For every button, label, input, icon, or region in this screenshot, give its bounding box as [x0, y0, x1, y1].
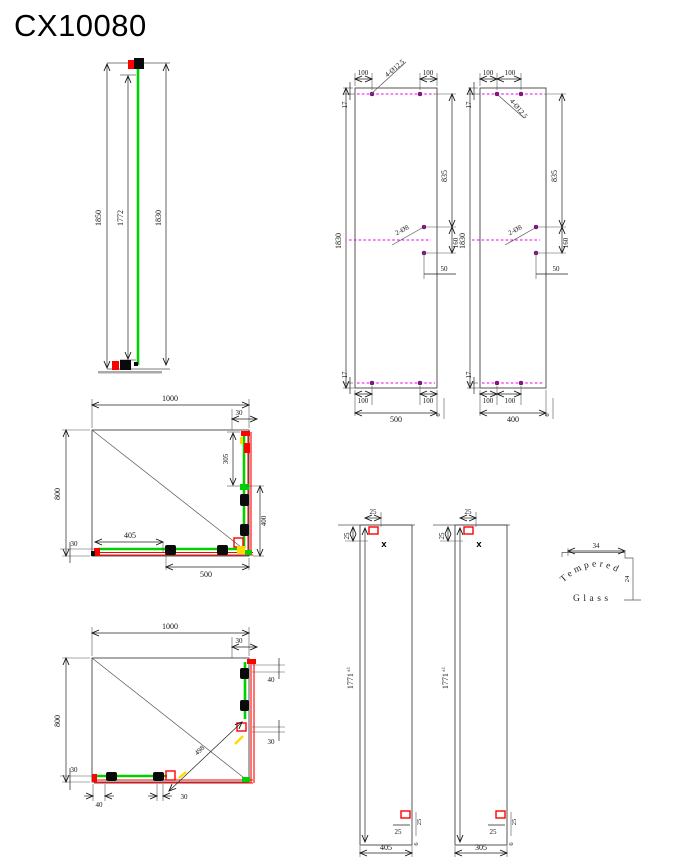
- side-elevation-view: 1850 1772 1830: [94, 58, 170, 374]
- dim-height: 1771±1: [441, 666, 450, 689]
- plan-view-bottom: 1000 30 40 30 800 30 40 30 498: [53, 622, 285, 809]
- panel-outline: [480, 88, 546, 388]
- dim-top-left: 100: [358, 69, 369, 77]
- hole: [495, 381, 499, 385]
- dim-bottom-a: 40: [96, 801, 104, 809]
- dim-bottom-right: 100: [505, 397, 516, 405]
- drawing-sheet: CX10080 1850 1772 1830: [0, 0, 680, 864]
- glass-outline: [360, 525, 412, 845]
- clamp: [106, 772, 117, 781]
- bottom-bracket-red: [112, 361, 119, 370]
- glass-outline: [455, 525, 507, 845]
- dim-overall-height: 1850: [94, 210, 103, 226]
- dim-width: 305: [475, 843, 487, 852]
- dim-width: 400: [507, 415, 519, 424]
- drilling-view-left: 100 100 4-Ø12.5 17 835 1830 2-Ø8 160 50: [334, 58, 460, 424]
- dim-corner: 30: [236, 637, 244, 645]
- hole: [519, 92, 523, 96]
- dim-top-edge: 17: [465, 101, 473, 109]
- dim-top-right: 100: [423, 69, 434, 77]
- plan-view-top: 1000 30 305 400 800 30 405 500: [53, 394, 268, 579]
- dim-width: 405: [380, 843, 392, 852]
- dim-edge-offset: 25: [511, 819, 518, 826]
- dim-bottom-right: 100: [423, 397, 434, 405]
- stamp-arc-text: Tempered: [559, 559, 623, 584]
- dim-height: 800: [53, 715, 62, 727]
- dim-side-offset: 25: [438, 532, 446, 540]
- clamp: [240, 524, 249, 536]
- dim-width: 1000: [162, 394, 178, 403]
- dim-top-right: 100: [505, 69, 516, 77]
- glass-clamp: [240, 484, 249, 490]
- dim-thickness: 6: [508, 842, 515, 846]
- note-top-holes: 4-Ø12.5: [508, 97, 529, 120]
- hole-bottom: [496, 811, 505, 818]
- dim-corner: 30: [236, 409, 244, 417]
- dim-top-offset: 25: [370, 508, 378, 516]
- dim-stamp-side: 24: [624, 575, 631, 582]
- note-mid-holes: 2-Ø8: [507, 223, 524, 237]
- top-bracket-red: [128, 60, 134, 69]
- clamp: [240, 668, 249, 679]
- dim-right-upper: 40: [268, 676, 276, 684]
- dim-bottom-b: 30: [181, 793, 189, 801]
- dim-width: 500: [390, 415, 402, 424]
- clamp: [217, 545, 228, 555]
- hole-mark: X: [476, 541, 482, 549]
- dim-mid-edge: 50: [553, 265, 561, 273]
- dim-mid-edge: 50: [441, 265, 449, 273]
- dim-height: 1771±1: [346, 666, 355, 689]
- dim-height: 1830: [334, 233, 343, 249]
- clamp: [165, 545, 176, 555]
- tempered-glass-stamp: 34 24 Tempered Glass: [559, 542, 641, 604]
- floor-line: [98, 371, 162, 374]
- hole: [370, 381, 374, 385]
- drilling-view-right: 100 100 4-Ø12.5 17 835 1830 2-Ø8 160 50 …: [458, 69, 570, 424]
- note-mid-holes: 2-Ø8: [394, 223, 411, 237]
- dim-upper-right: 305: [222, 453, 230, 464]
- clamp: [240, 700, 249, 711]
- hole-top: [369, 527, 378, 534]
- dim-mid-spacing: 160: [562, 237, 570, 248]
- stamp-base-text: Glass: [573, 594, 612, 604]
- dim-height: 1830: [458, 233, 467, 249]
- dim-upper-span: 835: [550, 170, 559, 182]
- glass-panel-right: X 25 25 1771±1 25 25 305 6: [433, 508, 518, 857]
- dim-height-value: 1771: [441, 673, 450, 689]
- dim-left: 30: [71, 540, 79, 548]
- top-bracket: [134, 58, 144, 69]
- dim-bottom-left: 100: [483, 397, 494, 405]
- clamp: [153, 772, 164, 781]
- hole-bottom: [401, 811, 410, 818]
- hole: [418, 92, 422, 96]
- glass-panel-left: X 25 25 1771±1 25 25 405 6: [338, 508, 423, 857]
- diagonal: [92, 658, 248, 781]
- dim-diagonal: 498: [193, 744, 207, 757]
- dim-top-left: 100: [483, 69, 494, 77]
- hole-mark: X: [381, 541, 387, 549]
- hole: [418, 381, 422, 385]
- dim-glass-height: 1830: [154, 210, 163, 226]
- dim-height-value: 1771: [346, 673, 355, 689]
- dim-top-offset: 25: [465, 508, 473, 516]
- dim-stamp-top: 34: [593, 542, 601, 550]
- dim-upper-span: 835: [440, 170, 449, 182]
- hole: [370, 92, 374, 96]
- hole-top: [464, 527, 473, 534]
- dim-height-tol: ±1: [442, 666, 447, 672]
- dim-bottom-offset: 25: [395, 828, 403, 836]
- bottom-bracket: [120, 360, 131, 370]
- dim-width: 1000: [162, 622, 178, 631]
- bracket: [166, 771, 175, 780]
- clamp: [240, 494, 249, 506]
- dim-bottom: 500: [200, 570, 212, 579]
- panel-outline: [355, 88, 437, 388]
- hole: [519, 381, 523, 385]
- dim-bottom-offset: 25: [490, 828, 498, 836]
- dim-height-tol: ±1: [347, 666, 352, 672]
- dim-bottom-edge: 17: [465, 371, 473, 379]
- dim-bottom-left: 100: [358, 397, 369, 405]
- dim-edge-offset: 25: [416, 819, 423, 826]
- dim-bottom-edge: 17: [341, 371, 349, 379]
- dim-height: 800: [53, 488, 62, 500]
- dim-side-offset: 25: [343, 532, 351, 540]
- dim-thickness: 6: [413, 842, 420, 846]
- dim-top-edge: 17: [341, 101, 349, 109]
- diagonal: [92, 430, 241, 547]
- drawing-canvas: 1850 1772 1830 100 100 4-Ø12.5: [0, 0, 680, 864]
- dim-right-lower: 30: [268, 738, 276, 746]
- note-top-holes: 4-Ø12.5: [383, 58, 406, 79]
- bottom-foot: [134, 362, 138, 366]
- dim-lower-right: 400: [260, 515, 268, 526]
- dim-left: 30: [71, 766, 79, 774]
- svg-text:Tempered: Tempered: [559, 559, 623, 584]
- dim-inner-height: 1772: [116, 210, 125, 226]
- dim-bar: 405: [124, 531, 136, 540]
- bracket: [237, 723, 246, 731]
